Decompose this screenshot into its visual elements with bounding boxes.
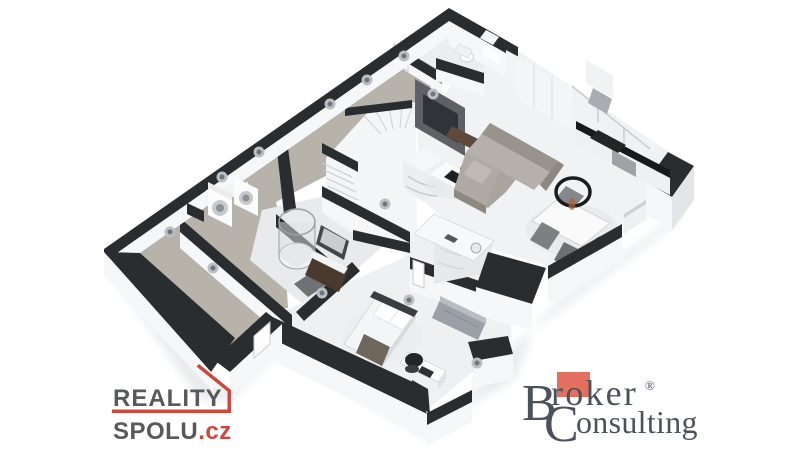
svg-text:onsulting: onsulting (576, 404, 698, 440)
svg-text:SPOLU.cz: SPOLU.cz (113, 418, 232, 445)
svg-text:C: C (544, 396, 579, 450)
svg-text:®: ® (645, 378, 655, 393)
svg-text:REALITY: REALITY (113, 385, 223, 412)
